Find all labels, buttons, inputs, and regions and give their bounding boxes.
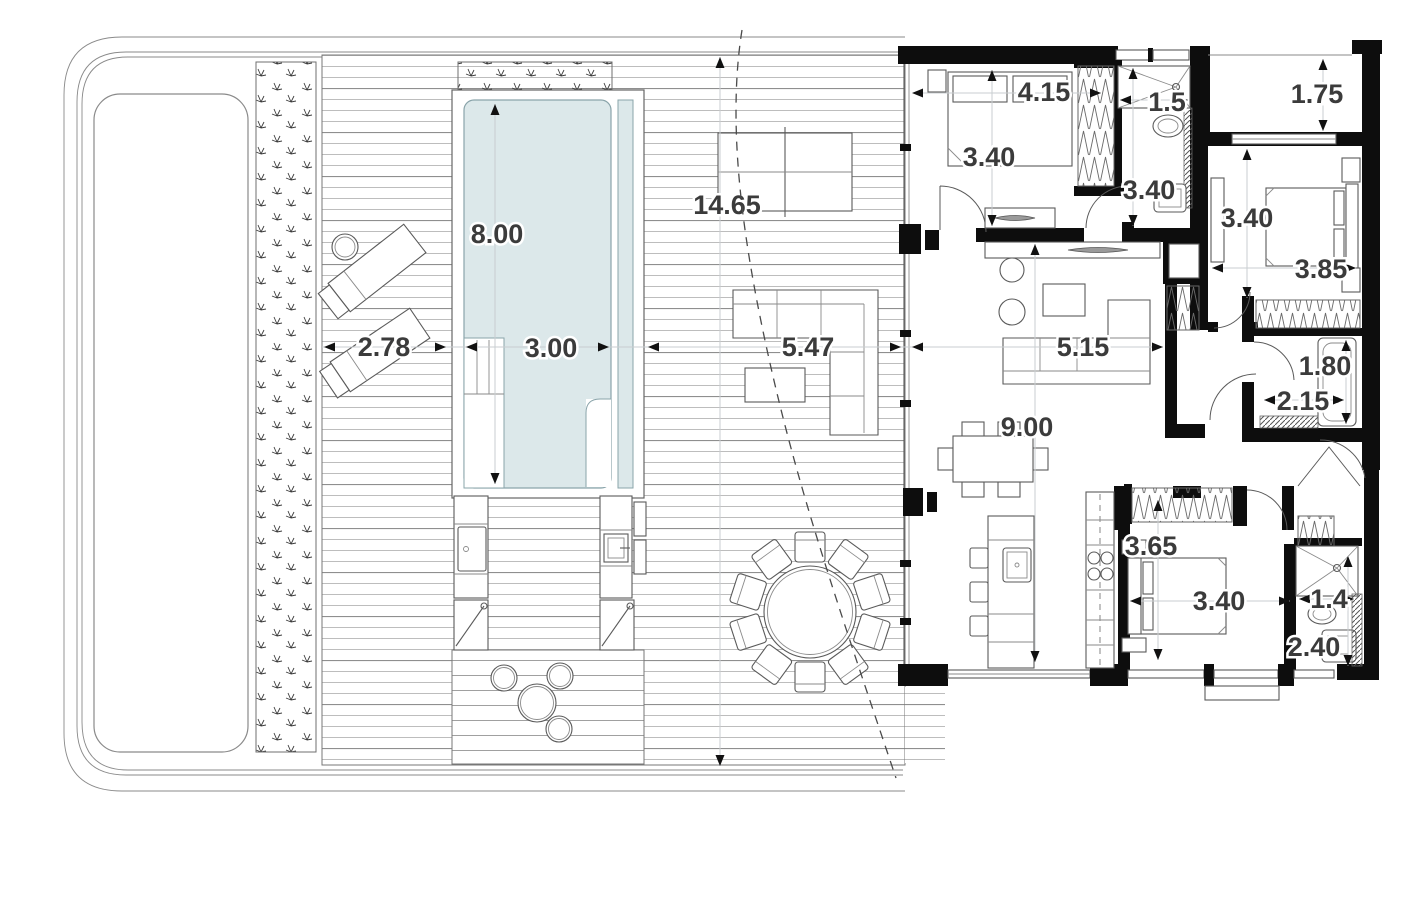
coffee-table: [1043, 284, 1085, 316]
bedroom3-door: [1247, 490, 1287, 530]
dim-front-deck-width: 5.47: [782, 332, 835, 362]
dim-bath2-length: 1.80: [1299, 351, 1352, 381]
east-wall-upper: [1362, 40, 1380, 470]
dim-deck-length: 14.65: [693, 190, 761, 220]
pool: [452, 62, 644, 498]
facade-column: [903, 488, 937, 516]
dim-bedroom2-depth: 3.40: [1221, 203, 1274, 233]
bath3-west-wall-upper: [1282, 486, 1294, 530]
kitchen-island: [970, 516, 1034, 668]
bath2-south-wall: [1242, 428, 1364, 442]
pool-planting-strip: [458, 62, 612, 90]
pool-overflow-channel: [618, 100, 633, 488]
dim-side-deck-width: 2.78: [358, 332, 411, 362]
dim-bedroom3-depth: 3.65: [1125, 531, 1178, 561]
dim-pool-width: 3.00: [525, 333, 578, 363]
dim-pool-length: 8.00: [471, 219, 524, 249]
pool-corner-bench: [586, 399, 611, 487]
facade-column: [899, 224, 939, 254]
pouf: [1000, 258, 1024, 282]
deck-boards-south: [905, 687, 945, 763]
wardrobe-bedroom1: [1078, 66, 1114, 186]
dim-bedroom3-bed-wall: 3.40: [1193, 586, 1246, 616]
wardrobe-bedroom3: [1132, 488, 1232, 522]
lawn-area: [94, 94, 248, 752]
pouf: [999, 299, 1025, 325]
dim-living-length: 9.00: [1001, 412, 1054, 442]
round-table: [764, 566, 856, 658]
nightstand: [1342, 158, 1360, 182]
bedroom1-door: [940, 186, 986, 232]
sideboard-bedroom1: [985, 208, 1055, 228]
floor-plan-canvas: 2.78 3.00 8.00 14.65 5.47 4.15 3.40 1.5 …: [0, 0, 1422, 914]
outdoor-kitchen-left: [454, 496, 488, 650]
stool: [970, 548, 988, 568]
dim-bath3-length: 2.40: [1288, 632, 1341, 662]
sideboard-living: [985, 242, 1160, 258]
hall-closet: [1167, 286, 1199, 330]
toilet-1: [1153, 115, 1183, 137]
planting-strip: [256, 62, 316, 752]
entry-side-wall: [1190, 46, 1210, 134]
dim-bedroom2-width: 3.85: [1295, 254, 1348, 284]
bath3-closet: [1298, 516, 1334, 546]
dim-bedroom1-width: 4.15: [1018, 77, 1071, 107]
south-wall: [898, 664, 1334, 700]
sliding-door: [1214, 670, 1278, 678]
wardrobe-bedroom2: [1256, 300, 1360, 328]
pool-side-table: [332, 234, 358, 260]
southeast-corner: [1337, 664, 1379, 680]
dim-shower1-width: 1.5: [1148, 87, 1186, 117]
sliding-door: [1128, 670, 1204, 678]
stool: [970, 616, 988, 636]
vanity-2: [1260, 416, 1318, 428]
hall-niche: [1163, 238, 1205, 284]
dim-bedroom1-depth: 3.40: [963, 142, 1016, 172]
terrace-step: [1205, 686, 1279, 700]
east-wall-lower: [1364, 470, 1379, 676]
dining-table: [953, 436, 1033, 482]
dim-bath1-depth: 3.40: [1123, 175, 1176, 205]
dim-entry-patio-depth: 1.75: [1291, 79, 1344, 109]
bath2-door: [1254, 342, 1294, 380]
floor-plan-drawing: 2.78 3.00 8.00 14.65 5.47 4.15 3.40 1.5 …: [0, 0, 1422, 914]
stool: [970, 582, 988, 602]
vestibule-door: [1320, 440, 1365, 478]
nightstand: [1122, 638, 1146, 652]
nightstand: [928, 70, 946, 92]
pool-steps: [464, 338, 504, 488]
kitchen-counter: [1086, 492, 1114, 668]
vestibule-double-door: [1298, 447, 1360, 486]
dim-living-width: 5.15: [1057, 332, 1110, 362]
dim-shower3-width: 1.4: [1310, 584, 1348, 614]
bedroom1-south-wall: [976, 228, 1084, 242]
bath3-tiled-wall: [1352, 594, 1362, 666]
dim-bath2-width: 2.15: [1277, 386, 1330, 416]
